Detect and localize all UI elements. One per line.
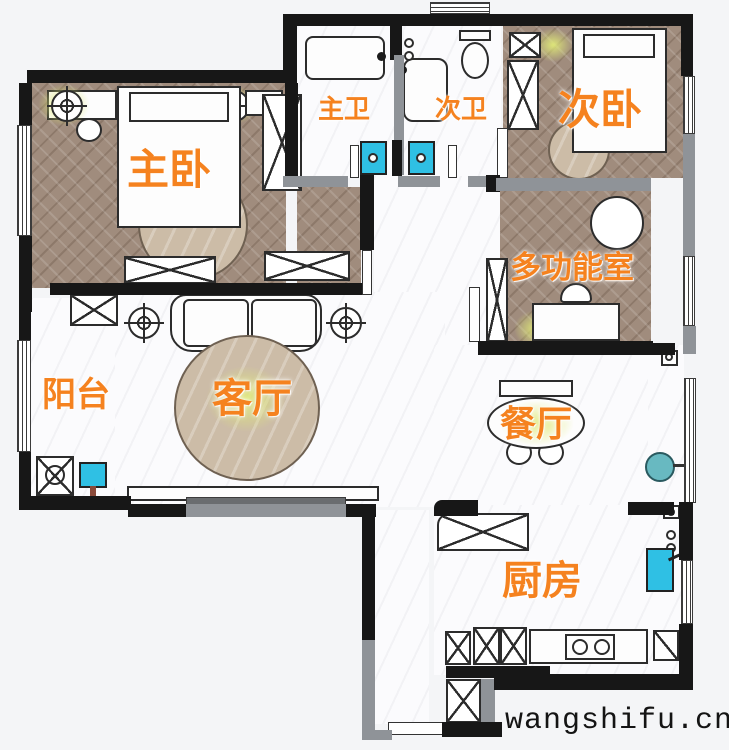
window <box>681 560 693 624</box>
bathtub <box>305 36 385 80</box>
base-cabinet <box>500 627 527 665</box>
door-leaf <box>469 287 480 342</box>
fridge-cabinet <box>437 513 529 551</box>
wall-secondary <box>362 640 375 736</box>
window <box>683 76 695 134</box>
mop-sink <box>79 462 107 488</box>
watermark: wangshifu.cn <box>505 704 729 738</box>
entry-hall-floor <box>367 510 429 724</box>
round-table <box>590 196 644 250</box>
door-leaf <box>362 250 372 295</box>
wall <box>442 722 502 737</box>
window <box>17 125 32 236</box>
floor-plan: 主卧 主卫 次卫 次卧 多功能室 阳台 客厅 餐厅 厨房 wangshifu.c… <box>0 0 729 750</box>
shower-head-icon <box>404 38 414 48</box>
wall-secondary <box>398 176 440 187</box>
toilet <box>461 42 489 79</box>
room-label-dining-room: 餐厅 <box>500 405 572 443</box>
master-bed-pillow <box>129 92 229 122</box>
wall <box>283 14 503 26</box>
wall-secondary <box>496 178 651 191</box>
wall <box>628 502 674 515</box>
room-label-second-bath: 次卫 <box>435 96 487 123</box>
shoe-cabinet <box>446 679 481 723</box>
room-label-second-bedroom: 次卧 <box>558 88 642 132</box>
corner-cabinet <box>653 630 679 661</box>
wall-secondary <box>362 730 392 740</box>
entry-door <box>388 722 444 735</box>
bed-bench <box>124 256 216 284</box>
base-cabinet <box>445 631 471 665</box>
wall-secondary <box>683 326 696 354</box>
utility-basin <box>645 452 675 482</box>
sideboard <box>499 380 573 397</box>
door-leaf <box>497 128 508 178</box>
wall <box>681 14 693 76</box>
burner-icon <box>594 639 610 655</box>
room-label-kitchen: 厨房 <box>502 560 582 602</box>
sink-drain-icon <box>368 153 378 163</box>
room-label-master-bedroom: 主卧 <box>127 148 211 192</box>
wall <box>19 83 32 125</box>
window <box>683 256 695 326</box>
wall <box>478 341 653 355</box>
ceiling-light-icon <box>51 90 83 122</box>
wall <box>653 343 675 355</box>
shower-head-icon <box>404 51 414 61</box>
wall <box>19 496 131 510</box>
toilet-tank <box>459 30 491 41</box>
desk <box>532 303 620 341</box>
wall <box>446 666 550 678</box>
wall-secondary <box>683 134 695 226</box>
door-leaf <box>448 145 457 178</box>
wall-secondary <box>186 504 346 517</box>
wardrobe <box>507 60 539 130</box>
wall <box>503 14 693 26</box>
ceiling-light-icon <box>330 307 362 339</box>
wall-secondary <box>481 679 495 723</box>
hookup-icon <box>666 530 676 540</box>
room-label-balcony: 阳台 <box>42 378 110 414</box>
second-bed-pillow <box>583 34 655 58</box>
wall <box>679 502 693 560</box>
wall <box>285 83 298 178</box>
base-cabinet <box>473 627 500 665</box>
wall <box>19 312 31 340</box>
wall <box>50 283 365 295</box>
cabinet <box>486 258 508 342</box>
wall <box>362 512 375 640</box>
wall <box>19 236 32 312</box>
sink-drain-icon <box>416 153 426 163</box>
ceiling-light-icon <box>128 307 160 339</box>
room-label-master-bath: 主卫 <box>318 96 370 123</box>
window <box>430 2 490 14</box>
washer-drum-icon <box>45 465 65 485</box>
window <box>17 340 31 452</box>
kitchen-sink <box>646 548 674 592</box>
wardrobe <box>264 251 350 281</box>
flue-column <box>509 32 541 58</box>
wall-secondary <box>683 226 695 256</box>
wall <box>27 70 293 83</box>
utility-strip-floor <box>648 345 684 505</box>
window <box>684 378 696 503</box>
room-label-multi-function: 多功能室 <box>510 252 634 285</box>
wall <box>434 500 478 516</box>
wall-secondary <box>283 176 348 187</box>
wall <box>360 175 374 250</box>
wall <box>128 504 186 517</box>
balcony-cabinet <box>70 294 118 326</box>
door-leaf <box>350 145 359 178</box>
burner-icon <box>572 639 588 655</box>
wall <box>392 140 402 176</box>
tub-faucet-icon <box>377 52 386 61</box>
room-label-living-room: 客厅 <box>212 378 292 420</box>
